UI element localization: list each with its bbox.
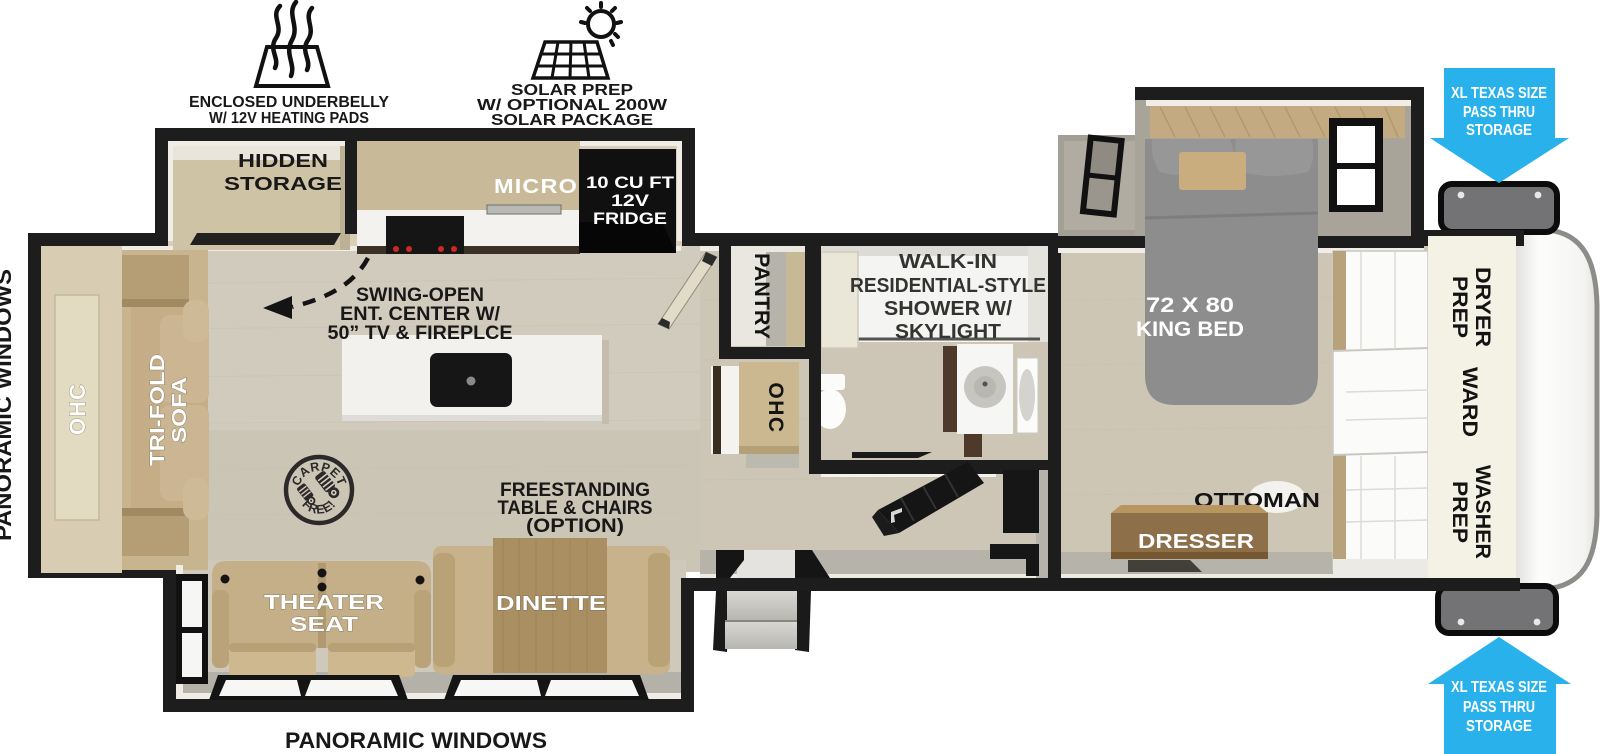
svg-text:PANTRY: PANTRY <box>750 253 773 339</box>
svg-text:SHOWER W/: SHOWER W/ <box>884 298 1012 320</box>
svg-text:XL TEXAS SIZE: XL TEXAS SIZE <box>1451 85 1547 102</box>
svg-text:STORAGE: STORAGE <box>1466 122 1532 139</box>
svg-text:TRI-FOLD: TRI-FOLD <box>147 354 169 466</box>
svg-text:KING BED: KING BED <box>1136 318 1244 341</box>
svg-text:SWING-OPEN: SWING-OPEN <box>356 285 484 306</box>
svg-text:FRIDGE: FRIDGE <box>593 209 667 228</box>
svg-text:OHC: OHC <box>65 383 90 435</box>
svg-text:12V: 12V <box>611 191 650 210</box>
svg-text:THEATER: THEATER <box>264 592 385 614</box>
svg-text:PREP: PREP <box>1448 276 1471 338</box>
svg-text:SKYLIGHT: SKYLIGHT <box>895 321 1001 343</box>
svg-text:50” TV & FIREPLCE: 50” TV & FIREPLCE <box>328 323 513 344</box>
svg-text:WASHER: WASHER <box>1471 465 1494 559</box>
svg-text:SOLAR PACKAGE: SOLAR PACKAGE <box>491 112 653 129</box>
svg-text:SEAT: SEAT <box>290 614 358 636</box>
svg-text:PREP: PREP <box>1448 481 1471 543</box>
svg-text:WARD: WARD <box>1458 367 1481 437</box>
svg-text:10 CU FT: 10 CU FT <box>586 173 675 192</box>
svg-text:PASS THRU: PASS THRU <box>1463 104 1535 121</box>
svg-text:ENT. CENTER W/: ENT. CENTER W/ <box>340 304 501 325</box>
svg-text:MICRO: MICRO <box>494 176 578 198</box>
svg-text:STORAGE: STORAGE <box>1466 718 1532 735</box>
svg-text:ENCLOSED UNDERBELLY: ENCLOSED UNDERBELLY <box>189 94 390 111</box>
svg-text:DINETTE: DINETTE <box>496 593 606 615</box>
svg-text:(OPTION): (OPTION) <box>526 516 624 537</box>
svg-text:DRYER: DRYER <box>1471 267 1494 347</box>
svg-text:WALK-IN: WALK-IN <box>899 251 997 273</box>
svg-text:RESIDENTIAL-STYLE: RESIDENTIAL-STYLE <box>850 275 1046 297</box>
svg-text:W/ 12V HEATING PADS: W/ 12V HEATING PADS <box>209 110 369 127</box>
svg-text:SOFA: SOFA <box>169 377 191 443</box>
svg-text:PANORAMIC WINDOWS: PANORAMIC WINDOWS <box>0 269 16 541</box>
svg-text:OHC: OHC <box>764 382 787 433</box>
svg-text:XL TEXAS SIZE: XL TEXAS SIZE <box>1451 679 1547 696</box>
svg-text:PANORAMIC WINDOWS: PANORAMIC WINDOWS <box>285 728 547 753</box>
svg-text:PASS THRU: PASS THRU <box>1463 699 1535 716</box>
svg-text:HIDDEN: HIDDEN <box>238 151 328 171</box>
svg-text:DRESSER: DRESSER <box>1138 531 1255 553</box>
svg-text:STORAGE: STORAGE <box>224 174 342 194</box>
svg-text:72 X 80: 72 X 80 <box>1146 294 1234 317</box>
